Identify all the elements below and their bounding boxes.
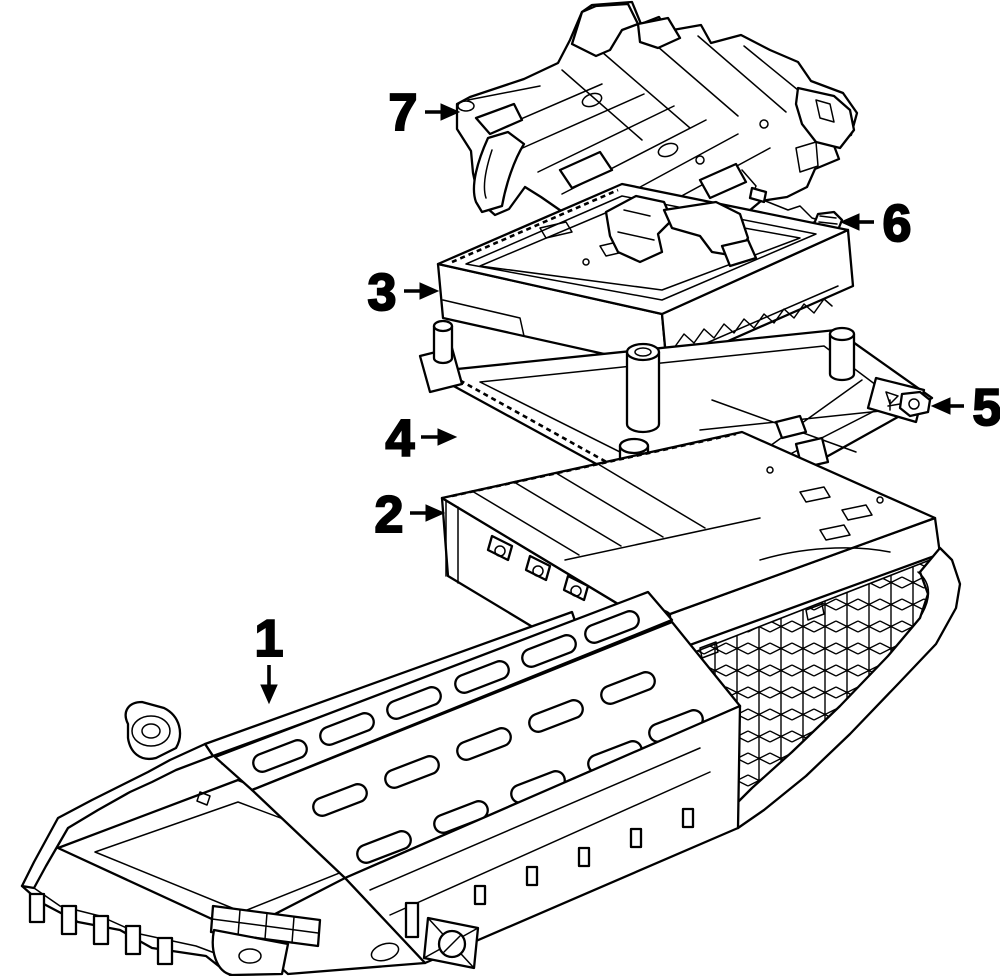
part-4-standoff-cylinder [627, 352, 659, 432]
part-4-post-top [620, 439, 648, 453]
part-1-battery-tray [22, 548, 960, 975]
callout-5[interactable]: 5 [932, 379, 1000, 437]
callout-5-label: 5 [973, 379, 1000, 437]
callout-4-arrowhead [438, 429, 456, 445]
callout-7-label: 7 [389, 84, 418, 142]
callout-4[interactable]: 4 [386, 410, 456, 468]
callout-2[interactable]: 2 [375, 486, 444, 544]
part-1-mounting-feet [30, 894, 172, 964]
parts-diagram-page: 7 6 3 5 4 2 1 [0, 0, 1000, 976]
part-4-right-cylinder-top [830, 328, 854, 340]
parts-diagram-canvas: 7 6 3 5 4 2 1 [0, 0, 1000, 976]
part-1-round-mount [126, 702, 180, 759]
callout-1-label: 1 [255, 610, 284, 668]
callout-7[interactable]: 7 [389, 84, 459, 142]
callout-6-label: 6 [883, 195, 912, 253]
part-4-left-bolt-top [434, 321, 452, 331]
callout-3[interactable]: 3 [368, 264, 438, 322]
callout-3-arrowhead [420, 283, 438, 299]
part-1-post [406, 903, 418, 937]
part-5-bolt-flange [900, 392, 930, 416]
callout-1-arrowhead [261, 685, 277, 703]
callout-1[interactable]: 1 [255, 610, 284, 703]
callout-5-arrowhead [932, 398, 950, 414]
callout-6-arrowhead [841, 214, 859, 230]
callout-6[interactable]: 6 [841, 195, 911, 253]
part-4-standoff-top [627, 344, 659, 360]
callout-3-label: 3 [368, 264, 397, 322]
callout-2-arrowhead [426, 505, 444, 521]
callout-2-label: 2 [375, 486, 404, 544]
callout-4-label: 4 [386, 410, 415, 468]
